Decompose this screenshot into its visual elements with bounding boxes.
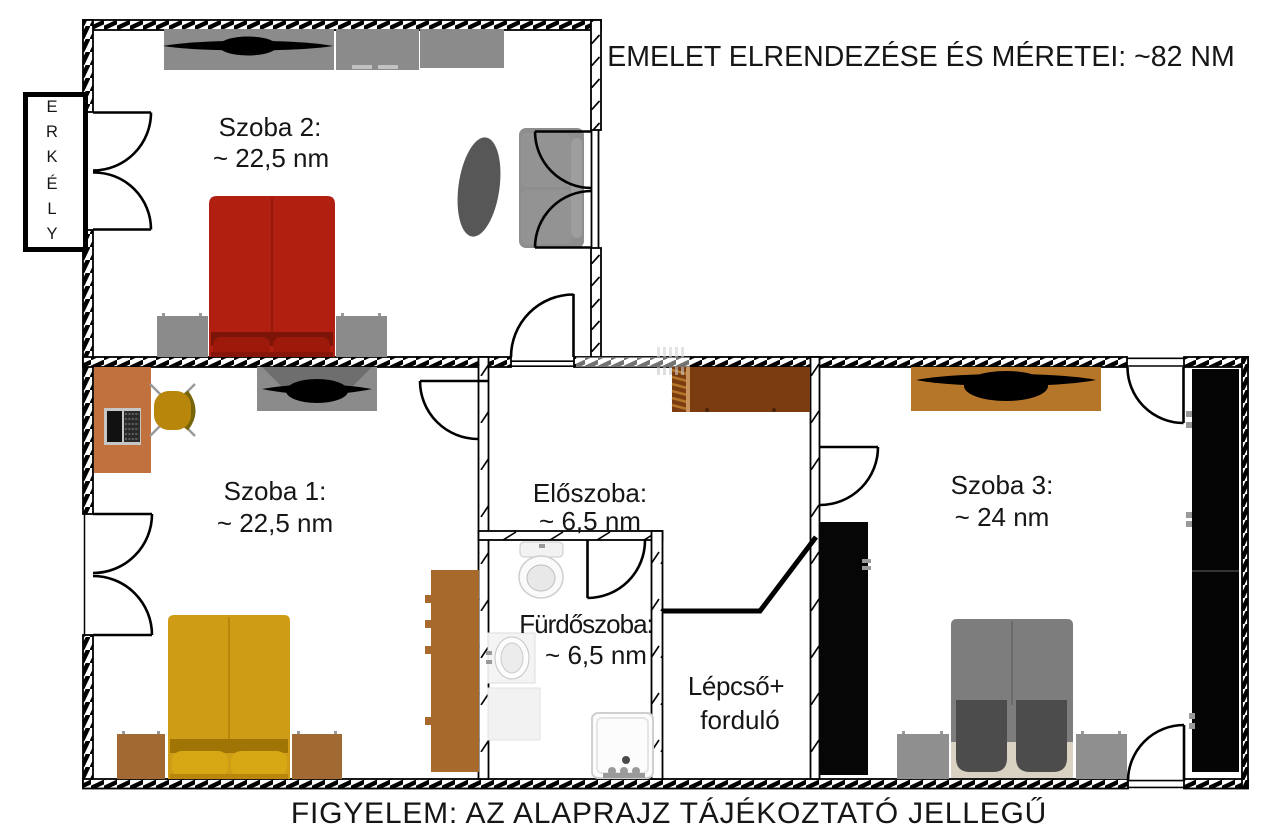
svg-text:E: E xyxy=(46,98,57,116)
svg-text:Szoba 2:: Szoba 2: xyxy=(219,112,322,142)
svg-text:Lépcső+: Lépcső+ xyxy=(688,671,784,701)
svg-text:Szoba 1:: Szoba 1: xyxy=(224,476,327,506)
svg-text:É: É xyxy=(46,174,57,193)
svg-text:~ 6,5 nm: ~ 6,5 nm xyxy=(545,640,647,670)
svg-text:~ 22,5 nm: ~ 22,5 nm xyxy=(213,143,329,173)
svg-text:~ 6,5 nm: ~ 6,5 nm xyxy=(539,506,641,536)
svg-text:forduló: forduló xyxy=(700,705,780,735)
svg-text:K: K xyxy=(46,148,57,166)
svg-text:FIGYELEM: AZ ALAPRAJZ TÁJÉKOZT: FIGYELEM: AZ ALAPRAJZ TÁJÉKOZTATÓ JELLEG… xyxy=(291,797,1047,830)
svg-text:EMELET ELRENDEZÉSE ÉS MÉRETEI:: EMELET ELRENDEZÉSE ÉS MÉRETEI: ~82 NM xyxy=(607,41,1234,73)
svg-text:R: R xyxy=(46,123,58,141)
svg-text:Y: Y xyxy=(46,225,57,243)
svg-text:Fürdőszoba:: Fürdőszoba: xyxy=(519,609,653,639)
svg-text:Előszoba:: Előszoba: xyxy=(533,478,647,508)
svg-text:~ 24 nm: ~ 24 nm xyxy=(955,502,1050,532)
svg-text:Szoba 3:: Szoba 3: xyxy=(951,470,1054,500)
svg-text:~ 22,5 nm: ~ 22,5 nm xyxy=(217,508,333,538)
svg-text:L: L xyxy=(47,200,56,218)
